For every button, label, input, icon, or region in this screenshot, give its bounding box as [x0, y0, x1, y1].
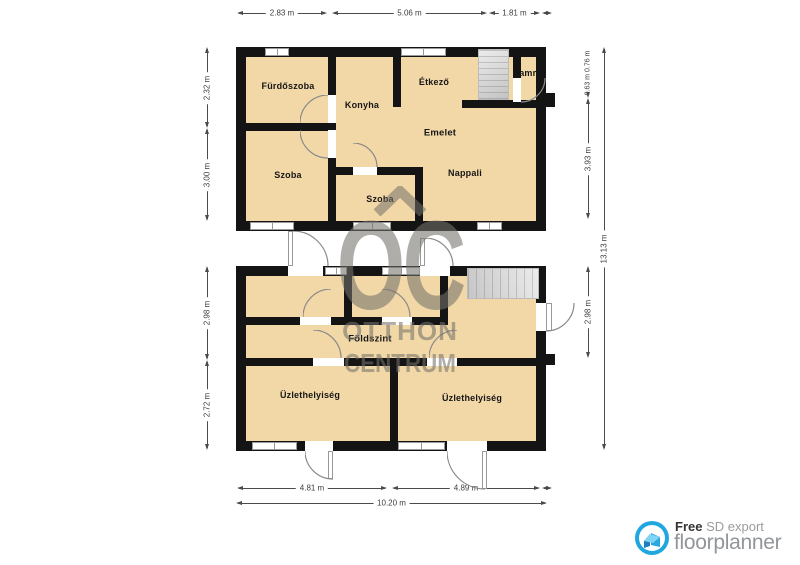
window — [325, 267, 347, 275]
door-opening — [313, 358, 344, 366]
dimension-right-small: 0.63 m 0.76 m — [584, 47, 593, 98]
door-opening — [300, 317, 331, 325]
ground-staircase — [467, 268, 539, 299]
door-arc — [300, 95, 329, 124]
upper-staircase — [478, 49, 509, 100]
window — [477, 222, 502, 230]
dimension-right-1: 3.93 m — [584, 98, 593, 219]
door-opening — [382, 317, 412, 325]
door-arc — [521, 78, 546, 103]
floor-title-ground: Földszint — [348, 334, 392, 345]
dimension-label: 0.63 m 0.76 m — [584, 46, 593, 99]
dimension-label: 2.32 m — [203, 71, 212, 103]
wall — [236, 358, 313, 366]
window — [353, 222, 391, 230]
door-arc — [546, 303, 575, 332]
watermark-roof-icon — [373, 186, 427, 216]
ground-floor-plan: Földszint Üzlethelyiség Üzlethelyiség — [236, 266, 546, 451]
door-arc — [303, 289, 332, 318]
dimension-label: 2.98 m — [584, 296, 593, 328]
dimension-label: 5.06 m — [393, 9, 425, 18]
window — [250, 222, 294, 230]
door-arc — [447, 451, 486, 490]
wall — [344, 358, 427, 366]
dimension-label: 2.98 m — [203, 297, 212, 329]
door-opening — [328, 95, 336, 123]
dimension-top-small — [542, 9, 552, 18]
dimension-label: 10.20 m — [373, 499, 410, 508]
door-arc — [305, 451, 334, 480]
door-opening — [427, 358, 457, 366]
door-opening — [513, 78, 521, 102]
dimension-top-2: 5.06 m — [332, 9, 487, 18]
door-opening — [328, 130, 336, 158]
window — [398, 442, 445, 450]
window — [382, 267, 420, 275]
floorplan-canvas: 2.83 m 5.06 m 1.81 m 2.32 m 3.00 m 2.98 … — [0, 0, 800, 565]
dimension-label: 2.83 m — [266, 9, 298, 18]
dimension-left-4: 2.72 m — [203, 360, 212, 450]
dimension-bottom-total: 10.20 m — [236, 499, 547, 508]
room-label-shop-right: Üzlethelyiség — [442, 393, 502, 403]
dimension-label: 13.13 m — [600, 230, 609, 267]
door-arc — [313, 330, 342, 359]
door-opening — [288, 266, 323, 276]
wall — [440, 276, 448, 325]
door-arc — [382, 289, 411, 318]
dimension-label: 2.72 m — [203, 389, 212, 421]
door-arc — [425, 238, 454, 267]
dimension-top-1: 2.83 m — [237, 9, 327, 18]
room-label-room-left: Szoba — [274, 170, 302, 180]
floor-title-upper: Emelet — [424, 128, 456, 139]
door-arc — [353, 143, 378, 168]
door-opening — [447, 441, 487, 451]
door-arc — [300, 130, 329, 159]
wall — [336, 167, 421, 175]
room-label-dining: Étkező — [419, 77, 449, 87]
room-label-bathroom: Fürdőszoba — [262, 81, 315, 91]
window — [265, 48, 289, 56]
wall-stub — [546, 354, 555, 365]
room-label-shop-left: Üzlethelyiség — [280, 390, 340, 400]
window — [401, 48, 446, 56]
wall — [393, 57, 401, 107]
dimension-label: 3.00 m — [203, 158, 212, 190]
chimney-stub — [546, 93, 555, 107]
door-opening — [353, 167, 377, 175]
floorplanner-logo-icon — [635, 521, 669, 555]
room-label-pantry: Kamra — [512, 68, 541, 78]
room-label-living: Nappali — [448, 168, 482, 178]
window — [252, 442, 297, 450]
door-opening — [420, 266, 450, 276]
dimension-right-total: 13.13 m — [600, 47, 609, 450]
house-icon — [641, 527, 663, 549]
dimension-top-3: 1.81 m — [489, 9, 540, 18]
door-opening — [305, 441, 333, 451]
wall — [390, 366, 398, 451]
dimension-bottom-1: 4.81 m — [237, 484, 387, 493]
wall — [457, 358, 546, 366]
dimension-label: 1.81 m — [498, 9, 530, 18]
door-arc — [429, 330, 458, 359]
door-arc — [293, 231, 329, 267]
door-opening — [536, 303, 546, 331]
dimension-left-1: 2.32 m — [203, 47, 212, 128]
dimension-left-3: 2.98 m — [203, 266, 212, 360]
room-label-kitchen: Konyha — [345, 100, 379, 110]
dimension-bottom-small — [542, 484, 552, 493]
dimension-label: 4.81 m — [296, 484, 328, 493]
wall — [236, 317, 350, 325]
logo-brand-text: floorplanner — [674, 531, 781, 555]
dimension-label: 3.93 m — [584, 142, 593, 174]
dimension-right-2: 2.98 m — [584, 266, 593, 358]
dimension-left-2: 3.00 m — [203, 128, 212, 221]
